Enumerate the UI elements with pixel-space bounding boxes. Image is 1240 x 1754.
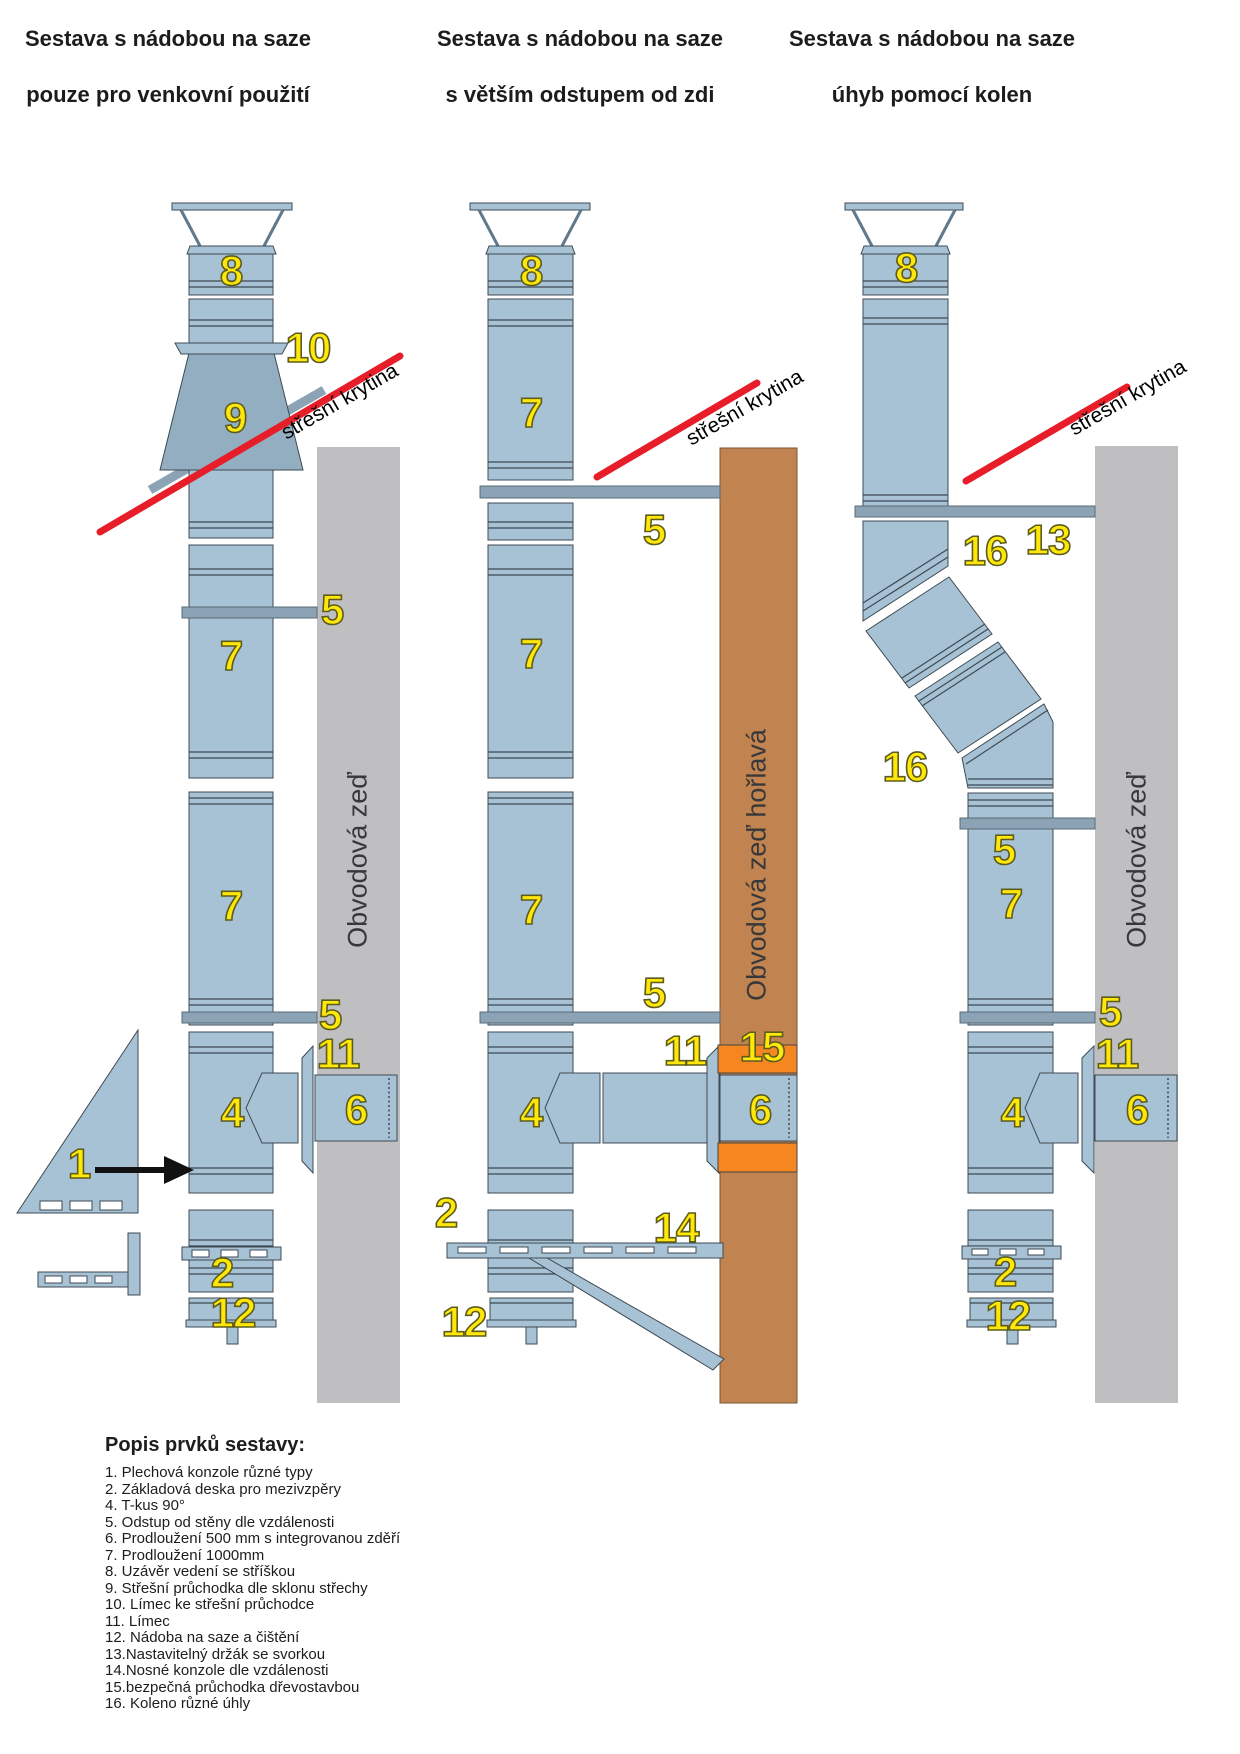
part-label-7: 7 <box>220 632 242 680</box>
title-assembly-2: Sestava s nádobou na saze s větším odstu… <box>420 26 740 108</box>
legend-item: 7. Prodloužení 1000mm <box>105 1548 400 1565</box>
title-line: Sestava s nádobou na saze <box>772 26 1092 52</box>
legend-item: 11. Límec <box>105 1614 400 1631</box>
legend-item: 6. Prodloužení 500 mm s integrovanou zdě… <box>105 1531 400 1548</box>
part-label-7: 7 <box>1000 880 1022 928</box>
part-label-8: 8 <box>520 247 542 295</box>
title-assembly-1: Sestava s nádobou na saze pouze pro venk… <box>8 26 328 108</box>
part-label-5: 5 <box>643 969 665 1017</box>
wall-bracket-upper <box>480 486 720 498</box>
part-label-8: 8 <box>220 247 242 295</box>
legend-item: 8. Uzávěr vedení se stříškou <box>105 1564 400 1581</box>
part-label-4: 4 <box>221 1089 243 1137</box>
part-label-7: 7 <box>220 882 242 930</box>
pipe-section-short <box>189 299 273 343</box>
part-label-5: 5 <box>643 506 665 554</box>
wall-bracket-upper <box>960 818 1095 829</box>
safe-passage-bottom <box>718 1143 797 1172</box>
wall-bracket-upper <box>182 607 317 618</box>
legend-item: 13.Nastavitelný držák se svorkou <box>105 1647 400 1664</box>
part-label-4: 4 <box>520 1089 542 1137</box>
part-label-16: 16 <box>883 743 928 791</box>
tee-piece <box>488 1032 600 1193</box>
w all-collar <box>1082 1046 1094 1173</box>
title-line: Sestava s nádobou na saze <box>420 26 740 52</box>
title-line: úhyb pomocí kolen <box>772 82 1092 108</box>
part-label-2: 2 <box>994 1248 1016 1296</box>
part-label-6: 6 <box>749 1086 771 1134</box>
part-label-5: 5 <box>1099 988 1121 1036</box>
part-label-6: 6 <box>345 1086 367 1134</box>
legend-title: Popis prvků sestavy: <box>105 1434 400 1457</box>
pipe-stub <box>488 503 573 540</box>
wall-bracket-lower <box>960 1012 1095 1023</box>
wall-bracket-lower <box>480 1012 720 1023</box>
legend: Popis prvků sestavy: 1. Plechová konzole… <box>105 1434 400 1713</box>
part-label-6: 6 <box>1126 1086 1148 1134</box>
part-label-16: 16 <box>963 527 1008 575</box>
legend-item: 16. Koleno různé úhly <box>105 1696 400 1713</box>
soot-container <box>487 1298 576 1344</box>
part-label-5: 5 <box>321 586 343 634</box>
outer-wall-label: Obvodová zeď <box>1122 772 1153 948</box>
chimney-assembly-page: Sestava s nádobou na saze pouze pro venk… <box>0 0 1240 1754</box>
tee-piece <box>189 1032 298 1193</box>
part-label-12: 12 <box>211 1289 256 1337</box>
title-assembly-3: Sestava s nádobou na saze úhyb pomocí ko… <box>772 26 1092 108</box>
title-line: s větším odstupem od zdi <box>420 82 740 108</box>
part-label-8: 8 <box>895 244 917 292</box>
part-label-11: 11 <box>317 1030 359 1078</box>
legend-item: 1. Plechová konzole různé typy <box>105 1465 400 1482</box>
part-label-14: 14 <box>654 1204 699 1252</box>
part-label-1: 1 <box>68 1140 90 1188</box>
legend-item: 15.bezpečná průchodka dřevostavbou <box>105 1680 400 1697</box>
legend-item: 2. Základová deska pro mezivzpěry <box>105 1482 400 1499</box>
legend-item: 9. Střešní průchodka dle sklonu střechy <box>105 1581 400 1598</box>
part-label-7: 7 <box>520 389 542 437</box>
part-label-12: 12 <box>986 1292 1031 1340</box>
l-bracket <box>38 1233 140 1295</box>
part-label-4: 4 <box>1001 1089 1023 1137</box>
wall-bracket-lower <box>182 1012 317 1023</box>
legend-item: 14.Nosné konzole dle vzdálenosti <box>105 1663 400 1680</box>
part-label-11: 11 <box>1096 1030 1138 1078</box>
pipe-section-long <box>863 299 948 506</box>
part-label-15: 15 <box>740 1023 785 1071</box>
flammable-wall-label: Obvodová zeď hořlavá <box>742 729 773 1001</box>
pipe-stub-under-cone <box>189 468 273 538</box>
legend-item: 5. Odstup od stěny dle vzdálenosti <box>105 1515 400 1532</box>
wall-collar <box>302 1046 313 1173</box>
part-label-12: 12 <box>442 1298 487 1346</box>
roof-collar-flange <box>175 343 288 354</box>
legend-item: 4. T-kus 90° <box>105 1498 400 1515</box>
title-line: Sestava s nádobou na saze <box>8 26 328 52</box>
legend-item: 12. Nádoba na saze a čištění <box>105 1630 400 1647</box>
legend-item: 10. Límec ke střešní průchodce <box>105 1597 400 1614</box>
outer-wall-label: Obvodová zeď <box>343 772 374 948</box>
part-label-10: 10 <box>286 324 331 372</box>
part-label-9: 9 <box>224 394 246 442</box>
part-label-5: 5 <box>993 826 1015 874</box>
part-label-2: 2 <box>435 1189 457 1237</box>
horizontal-pipe <box>603 1073 707 1143</box>
part-label-13: 13 <box>1026 516 1071 564</box>
wall-collar <box>707 1046 719 1173</box>
part-label-11: 11 <box>664 1027 706 1075</box>
part-label-7: 7 <box>520 630 542 678</box>
part-label-7: 7 <box>520 886 542 934</box>
title-line: pouze pro venkovní použití <box>8 82 328 108</box>
